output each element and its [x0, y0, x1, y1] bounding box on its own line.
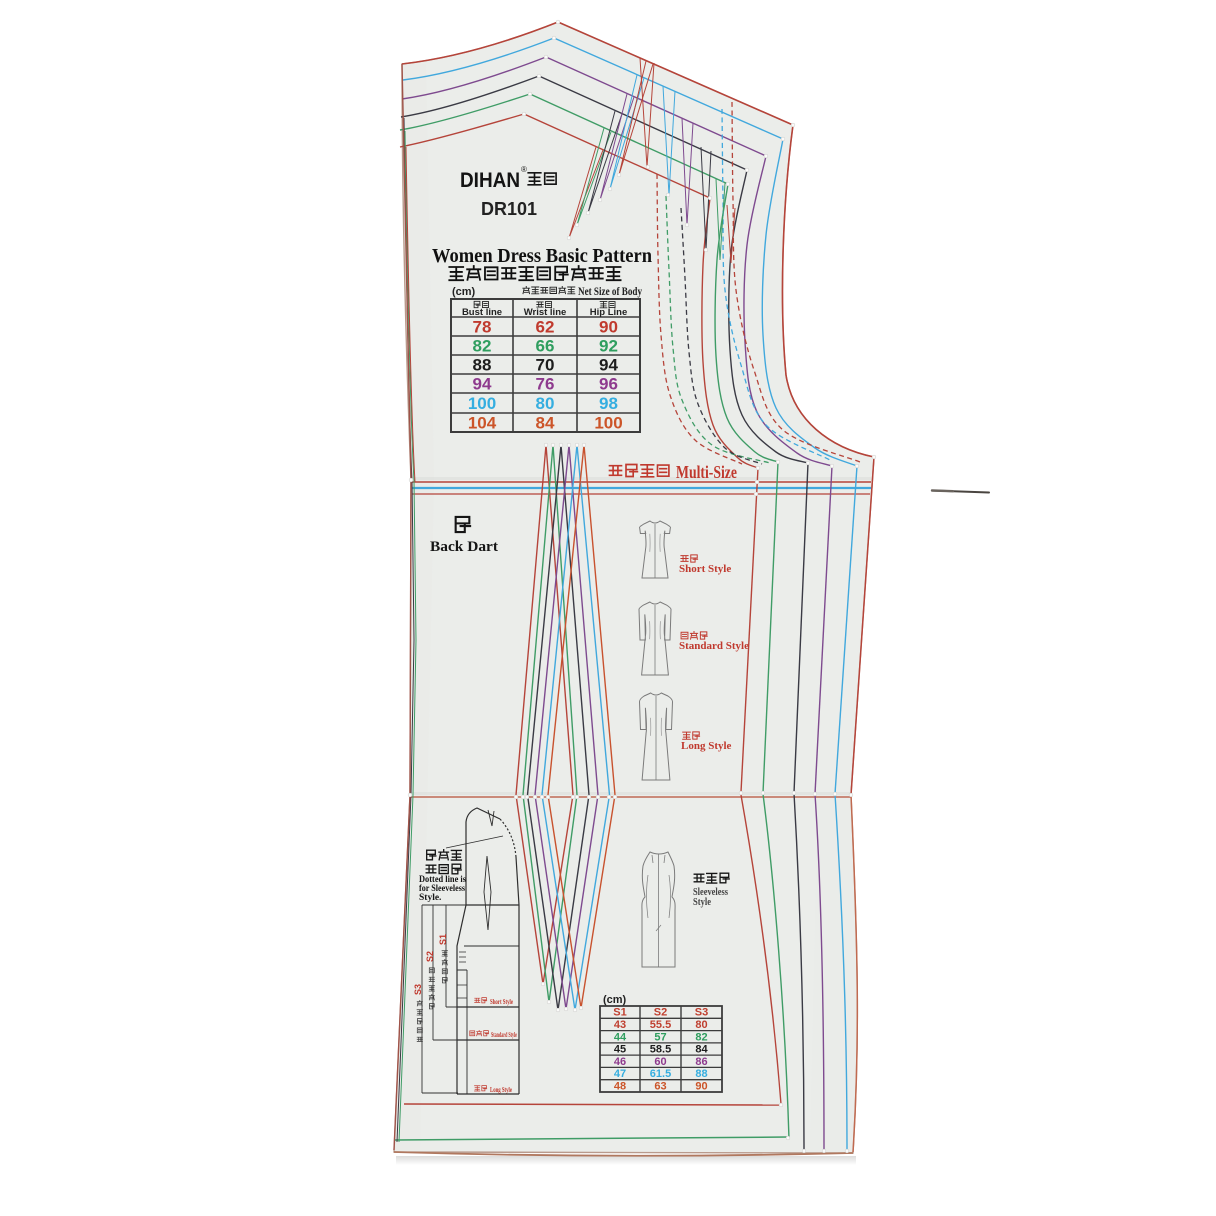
svg-text:44: 44 — [614, 1031, 627, 1043]
svg-text:80: 80 — [695, 1019, 707, 1031]
svg-text:84: 84 — [536, 414, 555, 433]
svg-text:86: 86 — [695, 1056, 707, 1068]
svg-text:Hip Line: Hip Line — [590, 307, 627, 318]
svg-text:63: 63 — [654, 1081, 666, 1093]
svg-text:96: 96 — [599, 375, 618, 394]
svg-text:48: 48 — [614, 1081, 626, 1093]
svg-text:S2: S2 — [654, 1007, 667, 1019]
svg-text:Standard Style: Standard Style — [679, 640, 749, 652]
svg-text:70: 70 — [536, 356, 555, 375]
svg-text:47: 47 — [614, 1068, 626, 1080]
svg-text:46: 46 — [614, 1056, 626, 1068]
svg-text:S3: S3 — [413, 984, 423, 995]
svg-text:Back Dart: Back Dart — [430, 539, 498, 555]
svg-text:60: 60 — [654, 1056, 666, 1068]
svg-text:66: 66 — [536, 337, 555, 356]
svg-text:Standard Style: Standard Style — [491, 1031, 517, 1039]
svg-text:82: 82 — [473, 337, 492, 356]
svg-text:DR101: DR101 — [481, 199, 537, 219]
svg-text:45: 45 — [614, 1044, 626, 1056]
svg-text:100: 100 — [468, 394, 496, 413]
svg-text:Long Style: Long Style — [681, 740, 732, 752]
svg-text:Style: Style — [693, 897, 711, 908]
svg-text:Long Style: Long Style — [490, 1086, 512, 1094]
svg-text:DIHAN: DIHAN — [460, 169, 520, 192]
svg-text:Women Dress Basic Pattern: Women Dress Basic Pattern — [432, 245, 652, 267]
svg-text:100: 100 — [594, 414, 622, 433]
svg-text:(cm): (cm) — [452, 286, 476, 298]
svg-text:57: 57 — [654, 1031, 666, 1043]
svg-text:55.5: 55.5 — [650, 1019, 671, 1031]
svg-text:Short Style: Short Style — [679, 563, 731, 575]
svg-text:104: 104 — [468, 414, 497, 433]
svg-text:(cm): (cm) — [603, 994, 627, 1006]
svg-text:Bust line: Bust line — [462, 307, 502, 318]
svg-text:43: 43 — [614, 1019, 626, 1031]
svg-text:88: 88 — [473, 356, 492, 375]
svg-text:S1: S1 — [438, 934, 448, 945]
svg-text:58.5: 58.5 — [650, 1044, 671, 1056]
svg-text:S1: S1 — [613, 1007, 626, 1019]
svg-text:88: 88 — [695, 1068, 707, 1080]
svg-text:Style.: Style. — [419, 893, 441, 903]
svg-text:®: ® — [521, 165, 527, 174]
svg-text:84: 84 — [695, 1044, 708, 1056]
svg-text:Short Style: Short Style — [490, 998, 513, 1006]
svg-text:98: 98 — [599, 394, 618, 413]
svg-text:94: 94 — [473, 375, 492, 394]
svg-text:90: 90 — [599, 318, 618, 337]
svg-text:94: 94 — [599, 356, 618, 375]
svg-text:90: 90 — [695, 1081, 707, 1093]
svg-text:92: 92 — [599, 337, 618, 356]
svg-text:61.5: 61.5 — [650, 1068, 671, 1080]
svg-text:Net Size of Body: Net Size of Body — [578, 286, 642, 298]
svg-text:76: 76 — [536, 375, 555, 394]
svg-text:62: 62 — [536, 318, 555, 337]
svg-text:78: 78 — [473, 318, 492, 337]
svg-text:S2: S2 — [425, 951, 435, 962]
svg-text:Wrist line: Wrist line — [524, 307, 567, 318]
svg-text:S3: S3 — [695, 1007, 708, 1019]
svg-text:80: 80 — [536, 394, 555, 413]
svg-text:Multi-Size: Multi-Size — [676, 462, 737, 482]
svg-text:82: 82 — [695, 1031, 707, 1043]
